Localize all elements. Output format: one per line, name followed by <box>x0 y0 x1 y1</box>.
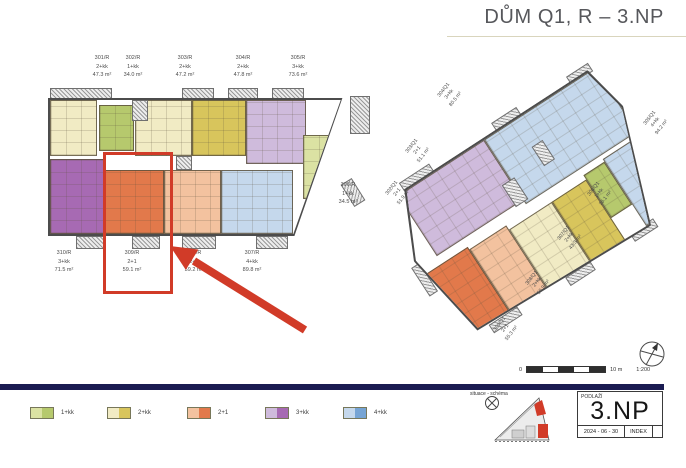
index-label: INDEX <box>625 426 653 437</box>
balcony-hatch <box>76 236 104 249</box>
date-label: 2024 - 06 - 30 <box>578 426 625 437</box>
legend-swatch <box>187 407 211 419</box>
stair-core <box>132 100 148 121</box>
unit-label-304r: 304/R2+kk47.8 m² <box>217 54 269 80</box>
unit-301r-block <box>50 100 97 156</box>
floor-plan-building-r <box>48 98 368 236</box>
building-r-interior <box>50 100 366 234</box>
legend-item-1kk: 1+kk <box>30 407 74 419</box>
legend-swatch <box>343 407 367 419</box>
drawing-sheet: DŮM Q1, R – 3.NP 301/R2+kk47.3 m² <box>0 0 686 468</box>
unit-305r-block <box>246 100 306 164</box>
unit-label-306r: 306/R1+kk34.5 m² <box>322 181 374 207</box>
empty-cell <box>653 426 662 437</box>
titleblock: PODLAŽÍ 3.NP 2024 - 06 - 30 INDEX <box>577 391 663 438</box>
unit-label-305r: 305/R3+kk73.6 m² <box>272 54 324 80</box>
legend-item-4kk: 4+kk <box>343 407 387 419</box>
unit-label-307r: 307/R4+kk89.8 m² <box>226 249 278 275</box>
scale-start: 0 <box>519 367 522 373</box>
legend-swatch <box>265 407 289 419</box>
unit-304r-block <box>192 100 246 156</box>
site-schema-drawing <box>492 394 554 444</box>
unit-label-310r: 310/R3+kk71.5 m² <box>38 249 90 275</box>
unit-label-304q1: 304/Q13+kk80.5 m² <box>428 71 472 119</box>
unit-label-303r: 303/R2+kk47.2 m² <box>159 54 211 80</box>
sheet-title: DŮM Q1, R – 3.NP <box>484 6 664 29</box>
balcony-hatch <box>182 236 216 249</box>
unit-310r-block <box>50 159 104 234</box>
legend-item-2kk: 2+kk <box>107 407 151 419</box>
scale-bar: 0 10 m 1:200 <box>519 366 650 373</box>
titleblock-bottom-row: 2024 - 06 - 30 INDEX <box>578 425 662 437</box>
highlight-rectangle <box>103 152 173 294</box>
legend-swatch <box>30 407 54 419</box>
unit-label-302r: 302/R1+kk34.0 m² <box>107 54 159 80</box>
footer-divider-bar <box>0 384 664 390</box>
legend-item-3kk: 3+kk <box>265 407 309 419</box>
scale-bar-segments <box>526 366 606 373</box>
legend-item-21: 2+1 <box>187 407 228 419</box>
stair-core <box>176 156 192 169</box>
unit-302r-block <box>99 105 134 151</box>
scale-end: 10 m <box>610 367 622 373</box>
floor-number: 3.NP <box>578 397 662 426</box>
unit-label-308r: 308/R2+159.2 m² <box>168 249 220 275</box>
compass-icon <box>637 338 667 370</box>
legend-swatch <box>107 407 131 419</box>
title-divider <box>447 36 686 37</box>
balcony-hatch <box>256 236 288 249</box>
unit-307r-block <box>221 170 294 234</box>
